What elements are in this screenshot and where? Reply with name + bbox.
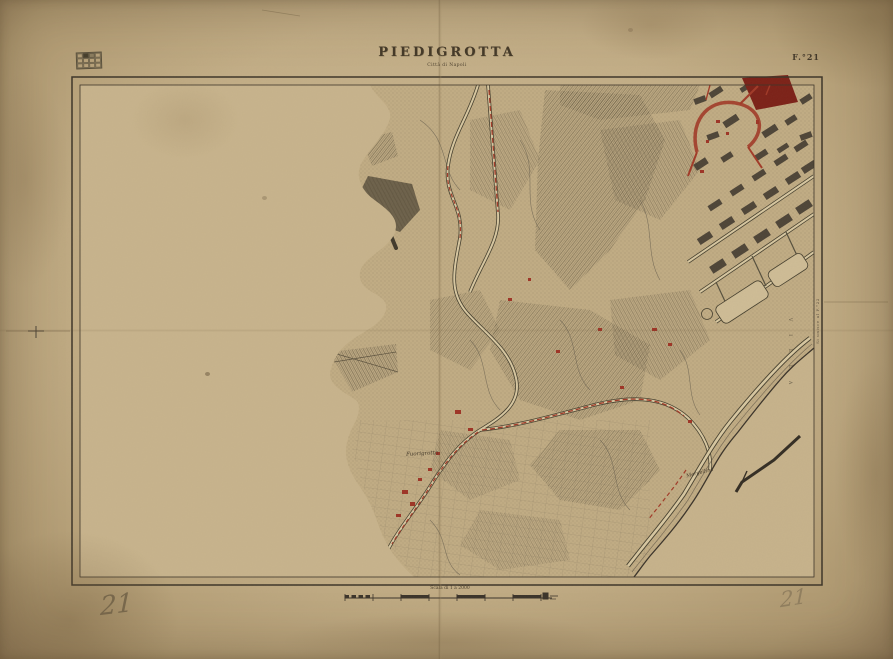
handwritten-number-bottom-left: 21 — [100, 588, 133, 622]
map-title: PIEDIGROTTA — [297, 45, 597, 60]
foxing-speck — [628, 28, 633, 32]
scale-label: Scala di 1 a 2000 — [403, 586, 497, 591]
foxing-speck — [262, 196, 267, 200]
margin-imprint-note: Si unisce al F.°22 — [815, 298, 820, 344]
horizontal-fold-crease — [0, 329, 893, 332]
handwritten-number-bottom-right: 21 — [780, 584, 807, 613]
sheet-number: F.°21 — [776, 52, 820, 62]
foxing-speck — [205, 372, 210, 376]
sheet-index-stamp-icon — [76, 52, 103, 70]
map-sheet: PIEDIGROTTA Città di Napoli F.°21 Scala … — [0, 0, 893, 659]
map-subtitle: Città di Napoli — [297, 63, 597, 68]
